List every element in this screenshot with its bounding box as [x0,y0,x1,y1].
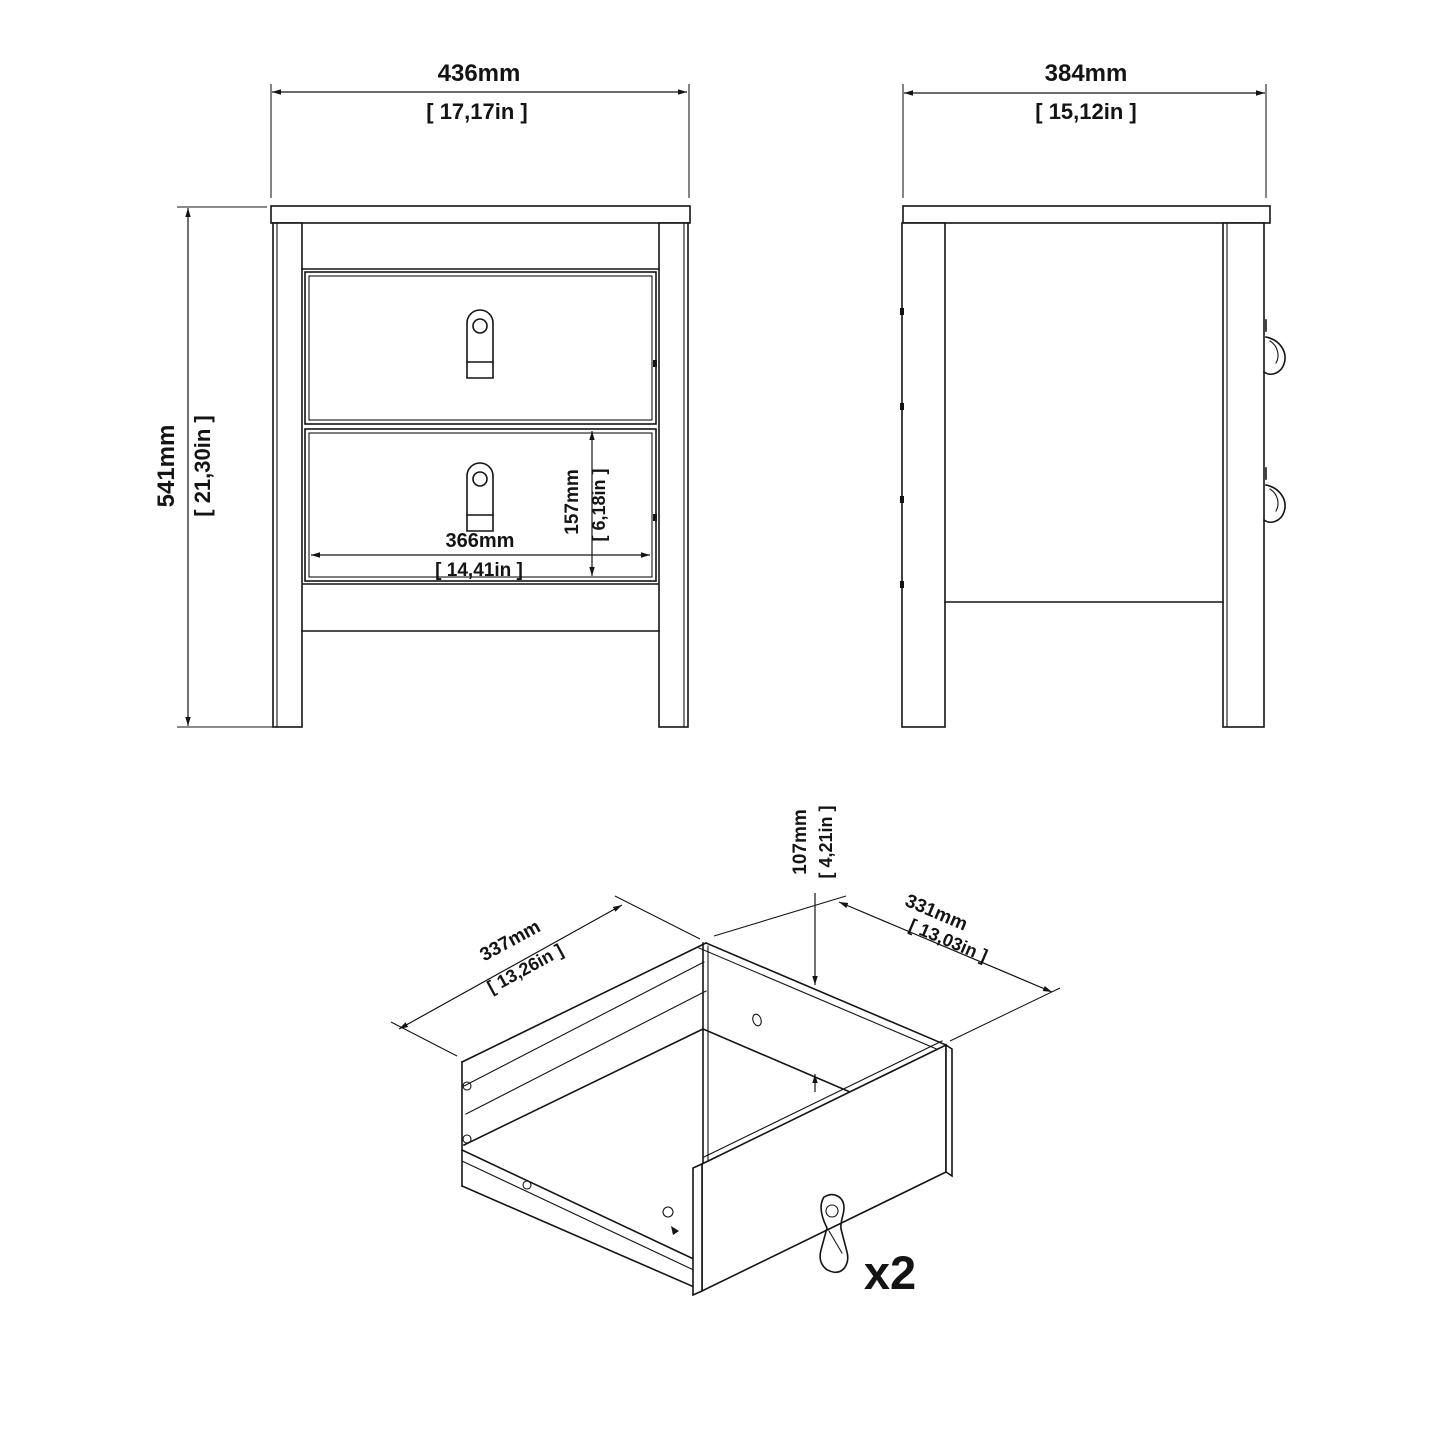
quantity-label: x2 [864,1246,916,1299]
front-view: 436mm [ 17,17in ] 541mm [ 21,30in ] [153,60,690,727]
rail-screw-hole [663,1207,673,1217]
drawer-width-dimension: 337mm [ 13,26in ] [391,896,700,1056]
side-tabletop [903,206,1270,223]
side-depth-in-label: [ 15,12in ] [1035,99,1136,124]
side-handle-top [1264,320,1285,374]
front-right-leg [659,223,688,727]
side-back-leg [900,223,945,727]
front-drawer-height-in-label: [ 6,18in ] [589,468,609,541]
drawer-height-dimension: 107mm [ 4,21in ] [790,805,836,1092]
side-view: 384mm [ 15,12in ] [900,60,1285,727]
drawer-box [462,943,952,1295]
drawer-depth-dimension: 331mm [ 13,03in ] [714,890,1060,1041]
front-inner-width-mm-label: 366mm [446,530,515,552]
front-height-mm-label: 541mm [153,425,180,508]
front-width-mm-label: 436mm [438,60,521,87]
drawing-canvas: 436mm [ 17,17in ] 541mm [ 21,30in ] [0,0,1445,1445]
front-height-dimension: 541mm [ 21,30in ] [153,207,273,727]
side-handle-bottom [1264,468,1285,522]
side-panel-screw-hole [751,1013,762,1027]
front-width-in-label: [ 17,17in ] [426,99,527,124]
side-depth-mm-label: 384mm [1045,60,1128,87]
drawing-page: 436mm [ 17,17in ] 541mm [ 21,30in ] [0,0,1445,1445]
drawer-left-rail [462,1062,701,1290]
rail-screw-hole [463,1135,471,1143]
front-inner-width-in-label: [ 14,41in ] [435,560,523,581]
rail-pointer-mark [671,1226,679,1235]
front-left-leg [273,223,302,727]
rail-screw-hole [523,1181,531,1189]
front-width-dimension: 436mm [ 17,17in ] [271,60,689,198]
side-front-leg [1223,223,1264,727]
front-drawer-height-mm-label: 157mm [562,469,583,535]
front-height-in-label: [ 21,30in ] [190,415,215,516]
front-drawer-1 [305,272,657,424]
side-depth-dimension: 384mm [ 15,12in ] [903,60,1266,198]
front-tabletop [271,206,690,223]
drawer-height-in-label: [ 4,21in ] [816,805,836,878]
drawer-isometric-view: 337mm [ 13,26in ] 331mm [ 13,03in ] 107m… [391,805,1060,1299]
drawer-height-mm-label: 107mm [790,809,811,875]
